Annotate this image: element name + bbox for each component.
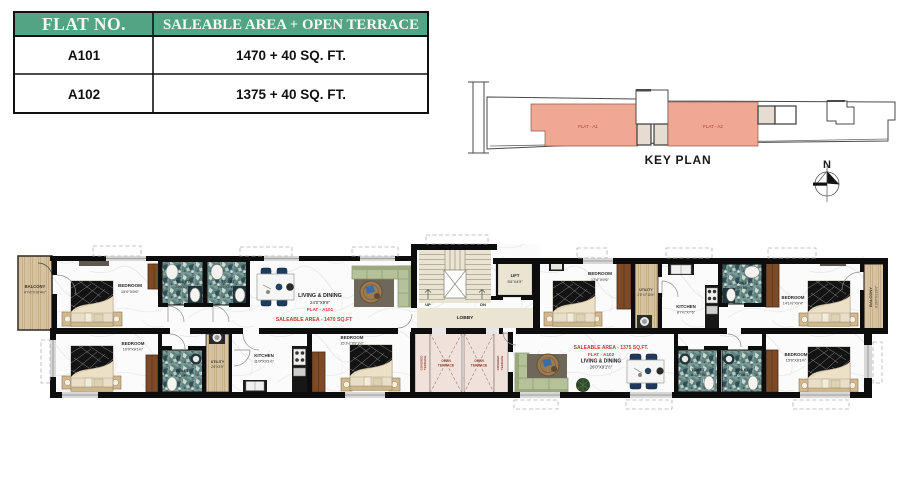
svg-text:LIVING & DINING: LIVING & DINING <box>298 293 342 299</box>
svg-text:DN: DN <box>480 302 486 307</box>
svg-text:TERRACE: TERRACE <box>423 356 427 371</box>
svg-text:KITCHEN: KITCHEN <box>254 353 274 358</box>
svg-text:4'0"X5'9": 4'0"X5'9" <box>735 373 749 377</box>
svg-text:LOBBY: LOBBY <box>457 315 475 321</box>
svg-text:LIFT: LIFT <box>511 273 520 278</box>
svg-text:TOILET: TOILET <box>691 368 705 372</box>
svg-text:BEDROOM: BEDROOM <box>782 295 805 300</box>
svg-text:UTILITY: UTILITY <box>639 288 653 292</box>
svg-text:KITCHEN: KITCHEN <box>676 304 696 309</box>
svg-text:4'0"X8'1½": 4'0"X8'1½" <box>175 285 192 289</box>
svg-text:FLAT - A102: FLAT - A102 <box>588 352 615 357</box>
svg-text:4'0"X8'1½": 4'0"X8'1½" <box>220 285 237 289</box>
svg-text:TERRACE: TERRACE <box>500 356 504 371</box>
svg-text:15'0"X9'1½": 15'0"X9'1½" <box>786 359 807 363</box>
svg-text:8'7½"X7'6": 8'7½"X7'6" <box>677 311 696 315</box>
svg-text:BEDROOM: BEDROOM <box>785 352 808 357</box>
svg-text:9'10½"X3'10½": 9'10½"X3'10½" <box>875 285 879 308</box>
svg-text:4'0"X5'9": 4'0"X5'9" <box>691 373 705 377</box>
svg-text:4'7½"X10'4½": 4'7½"X10'4½" <box>24 291 47 295</box>
svg-text:24'0"X9'6": 24'0"X9'6" <box>310 300 330 305</box>
svg-text:1375 + 40 SQ. FT.: 1375 + 40 SQ. FT. <box>236 87 346 102</box>
svg-text:FLAT - A1: FLAT - A1 <box>578 124 598 129</box>
svg-text:TOILET: TOILET <box>221 280 235 284</box>
svg-text:FLAT NO.: FLAT NO. <box>42 14 126 34</box>
svg-text:11'0"X9'1½": 11'0"X9'1½" <box>254 360 275 364</box>
svg-text:UTILITY: UTILITY <box>211 360 225 364</box>
svg-text:5'6"X4'9": 5'6"X4'9" <box>507 280 523 284</box>
svg-text:UP: UP <box>425 302 431 307</box>
svg-text:2'6"X7'10½": 2'6"X7'10½" <box>637 293 654 297</box>
svg-text:BEDROOM: BEDROOM <box>588 271 612 276</box>
svg-text:26'0"X9'1½": 26'0"X9'1½" <box>590 365 613 370</box>
svg-text:BEDROOM: BEDROOM <box>118 283 142 288</box>
svg-text:TOILET: TOILET <box>736 281 750 285</box>
svg-text:FLAT - A2: FLAT - A2 <box>703 124 723 129</box>
svg-text:TERRACE: TERRACE <box>438 364 455 368</box>
svg-text:SALEABLE AREA - 1470 SQ.FT: SALEABLE AREA - 1470 SQ.FT <box>276 317 353 323</box>
svg-text:A101: A101 <box>68 48 101 63</box>
svg-text:4'0"X8'5½": 4'0"X8'5½" <box>735 286 752 290</box>
svg-text:BALCONY: BALCONY <box>25 284 46 289</box>
svg-text:SALEABLE AREA + OPEN TERRACE: SALEABLE AREA + OPEN TERRACE <box>163 17 419 33</box>
svg-text:SALEABLE AREA - 1375 SQ.FT.: SALEABLE AREA - 1375 SQ.FT. <box>574 345 649 351</box>
svg-text:FLAT - A101: FLAT - A101 <box>307 307 334 312</box>
svg-text:BEDROOM: BEDROOM <box>341 335 364 340</box>
svg-text:OPEN: OPEN <box>474 359 484 363</box>
svg-text:OPEN: OPEN <box>441 359 451 363</box>
svg-text:TOILET: TOILET <box>735 368 749 372</box>
svg-text:4'0"X5'5": 4'0"X5'5" <box>175 374 189 378</box>
svg-text:14'1½"X9'4": 14'1½"X9'4" <box>783 302 804 306</box>
svg-text:TOILET: TOILET <box>175 369 189 373</box>
svg-text:TERRACE: TERRACE <box>471 364 488 368</box>
svg-text:BEDROOM: BEDROOM <box>122 341 145 346</box>
svg-text:10'0"X9'1½": 10'0"X9'1½" <box>123 348 144 352</box>
svg-text:15'0"X9'6": 15'0"X9'6" <box>121 289 140 294</box>
svg-text:A102: A102 <box>68 87 100 102</box>
svg-text:1470 + 40 SQ. FT.: 1470 + 40 SQ. FT. <box>236 48 346 63</box>
svg-text:KEY PLAN: KEY PLAN <box>645 153 712 167</box>
svg-text:2'6"X3'9": 2'6"X3'9" <box>211 365 224 369</box>
svg-text:BALCONY: BALCONY <box>868 287 873 307</box>
svg-text:TOILET: TOILET <box>176 280 190 284</box>
